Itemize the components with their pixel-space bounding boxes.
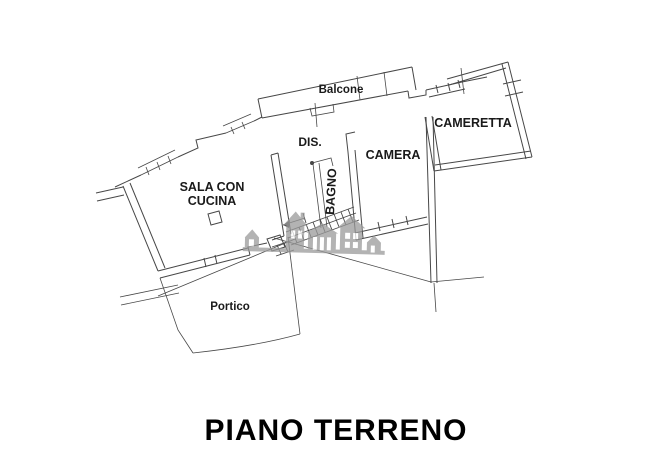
room-label-sala-line1: SALA CON [180, 180, 245, 194]
watermark-window [345, 242, 350, 248]
room-labels: Balcone DIS. CAMERETTA CAMERA BAGNO SALA… [180, 84, 512, 313]
floor-plan-page: Balcone DIS. CAMERETTA CAMERA BAGNO SALA… [0, 0, 650, 450]
watermark-window [298, 231, 302, 239]
room-label-bagno: BAGNO [323, 168, 339, 215]
watermark-window [313, 237, 317, 250]
watermark-window [249, 239, 254, 246]
floor-plan-title: PIANO TERRENO [204, 414, 467, 447]
watermark-window [327, 237, 331, 250]
room-label-cameretta: CAMERETTA [434, 116, 512, 130]
watermark-window [345, 233, 350, 239]
floor-plan-drawing: Balcone DIS. CAMERETTA CAMERA BAGNO SALA… [0, 0, 650, 450]
watermark-window [291, 230, 295, 238]
east-spine-wall [426, 117, 437, 283]
door-pivot-dot [310, 161, 314, 165]
sala-pillar [208, 211, 222, 225]
room-label-portico: Portico [210, 301, 250, 313]
room-label-balcone: Balcone [319, 84, 364, 96]
room-label-dis: DIS. [298, 135, 321, 149]
exterior-wall-north-right [408, 77, 487, 98]
window-symbol-left-1 [138, 150, 178, 175]
portico-outline [120, 237, 300, 353]
watermark-window [353, 233, 358, 239]
exterior-wall-west [123, 183, 165, 271]
houses-logo-icon [243, 210, 386, 255]
watermark-window [320, 237, 324, 250]
watermark-window [353, 242, 358, 248]
watermark-window [371, 245, 375, 252]
structural-walls [96, 62, 532, 353]
room-label-camera: CAMERA [366, 148, 421, 162]
watermark-chimney [301, 213, 305, 220]
window-symbol-left-2 [223, 114, 254, 134]
camera-south-wall [355, 216, 428, 240]
room-label-sala-line2: CUCINA [188, 194, 237, 208]
